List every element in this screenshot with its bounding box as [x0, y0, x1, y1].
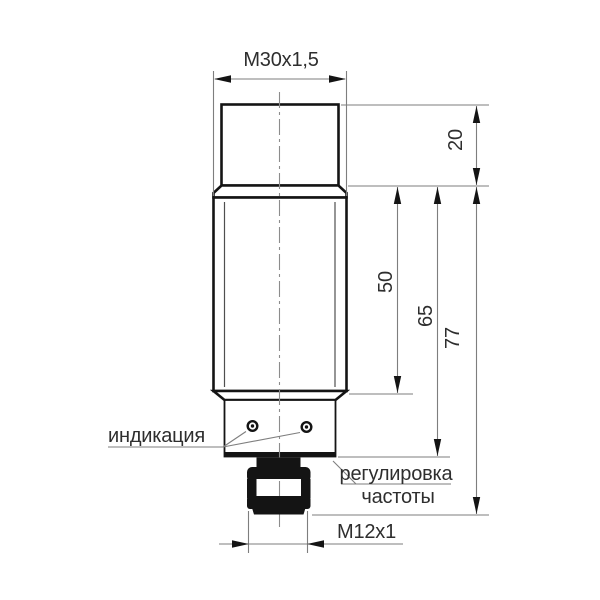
sensor-dimensional-drawing: M30x1,5 20 50 65 77 индикация регулировк… — [0, 0, 600, 600]
label-adjustment-line2: частоты — [361, 486, 434, 508]
connector-mid-right-wall — [301, 479, 311, 498]
dim-value-65: 65 — [415, 305, 437, 327]
connector-neck — [257, 458, 301, 469]
label-thread-m12: M12x1 — [337, 521, 396, 543]
connector-m12 — [247, 458, 311, 515]
connector-mid-left-wall — [247, 479, 257, 498]
indicator-led-left-dot — [251, 424, 254, 427]
dim-value-77: 77 — [442, 327, 464, 349]
dim-value-50: 50 — [375, 271, 397, 293]
connector-tip — [252, 508, 306, 515]
connector-mid-band — [252, 479, 306, 498]
dim-value-20: 20 — [445, 129, 467, 151]
label-indication: индикация — [108, 425, 205, 447]
technical-drawing-canvas: M30x1,5 20 50 65 77 индикация регулировк… — [0, 0, 600, 600]
indicator-led-right-dot — [305, 425, 308, 428]
label-thread-m30: M30x1,5 — [243, 49, 318, 71]
label-adjustment-line1: регулировка — [340, 463, 454, 485]
connector-bottom-band — [247, 496, 311, 509]
